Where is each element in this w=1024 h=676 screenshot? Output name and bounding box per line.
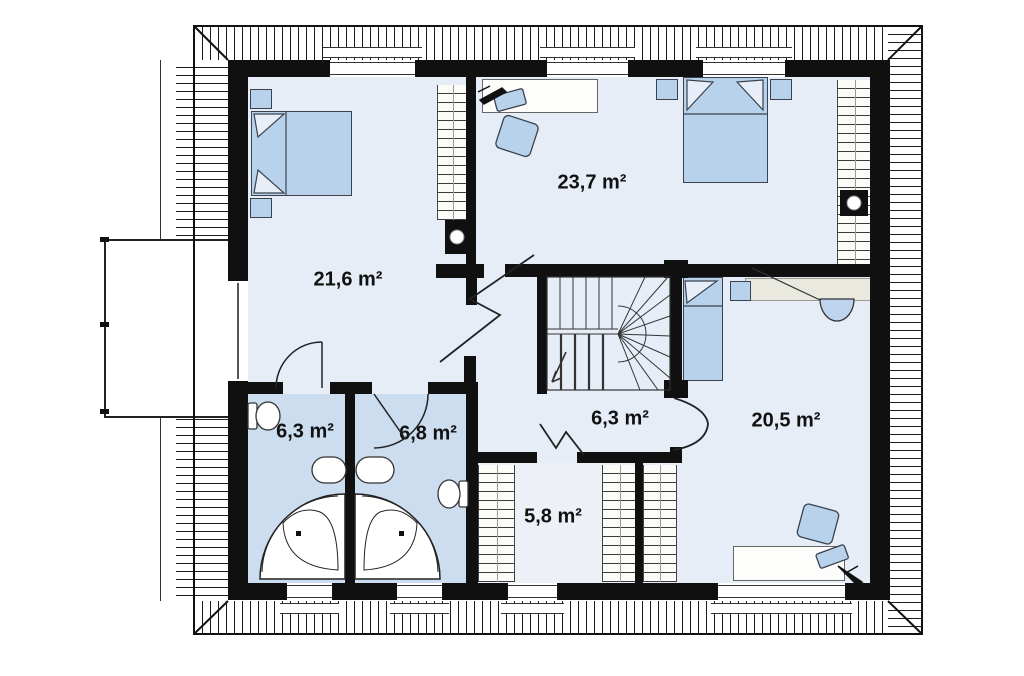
nightstand xyxy=(656,79,678,100)
balcony-platform xyxy=(104,239,234,418)
wall-post xyxy=(664,260,688,278)
chimney-block xyxy=(445,220,469,254)
room-label-bedroom-bottom-right: 20,5 m² xyxy=(752,410,821,433)
window-sill xyxy=(323,47,422,58)
room-label-bathroom-left: 6,3 m² xyxy=(276,421,334,444)
wall xyxy=(870,60,890,583)
desk-top xyxy=(482,79,598,113)
wardrobe-strip-bedroom2 xyxy=(837,80,872,264)
room-label-bathroom-right: 6,8 m² xyxy=(399,423,457,446)
wall-post xyxy=(664,380,688,398)
wall xyxy=(330,382,372,394)
wall xyxy=(228,381,248,583)
window xyxy=(703,62,785,75)
wall xyxy=(505,264,872,277)
window xyxy=(397,585,442,598)
window-sill xyxy=(390,603,449,614)
window xyxy=(508,585,557,598)
wall xyxy=(248,382,283,394)
window-sill xyxy=(696,47,792,58)
wardrobe-strip-bedroom1 xyxy=(437,85,469,220)
wall xyxy=(332,583,397,600)
wardrobe-strip-58-left xyxy=(478,465,515,582)
bed-double-right xyxy=(683,77,768,183)
wall xyxy=(228,60,248,281)
wall-shelf xyxy=(745,278,874,301)
wall xyxy=(436,264,484,278)
window xyxy=(547,62,628,75)
window-sill xyxy=(540,47,635,58)
wall xyxy=(577,452,682,463)
window xyxy=(330,62,415,75)
balcony-door-leaf xyxy=(237,283,239,379)
chimney-block xyxy=(840,190,868,216)
room-label-bedroom-top-left: 21,6 m² xyxy=(314,269,383,292)
wall xyxy=(228,583,287,600)
nightstand xyxy=(250,89,272,109)
wall xyxy=(442,583,508,600)
window xyxy=(718,585,845,598)
nightstand xyxy=(250,198,272,218)
window-sill xyxy=(711,603,852,614)
wardrobe-strip-bedroom3 xyxy=(643,465,677,582)
wall xyxy=(635,463,643,583)
window-sill xyxy=(501,603,564,614)
nightstand xyxy=(730,281,751,301)
wall xyxy=(628,60,703,77)
wall xyxy=(557,583,718,600)
floor-plan: 21,6 m² 23,7 m² 6,3 m² 6,8 m² 6,3 m² 5,8… xyxy=(0,0,1024,676)
nightstand xyxy=(770,79,792,100)
wall xyxy=(845,583,890,600)
wardrobe-strip-58-right xyxy=(602,465,637,582)
wall xyxy=(428,382,466,394)
wall-stairs-left xyxy=(537,264,547,394)
room-label-bedroom-top-right: 23,7 m² xyxy=(558,172,627,195)
wall xyxy=(345,394,355,583)
room-label-wardrobe-room: 5,8 m² xyxy=(524,506,582,529)
wall xyxy=(415,60,547,77)
roof-band-right xyxy=(888,27,921,633)
window xyxy=(287,585,332,598)
desk-bottom xyxy=(733,546,845,581)
wall-stairs-right xyxy=(670,264,682,398)
window-sill xyxy=(280,603,339,614)
bed-double-left xyxy=(251,111,352,196)
room-label-hall: 6,3 m² xyxy=(591,408,649,431)
wall xyxy=(466,278,477,305)
wall xyxy=(466,382,478,583)
bed-single xyxy=(683,277,723,381)
